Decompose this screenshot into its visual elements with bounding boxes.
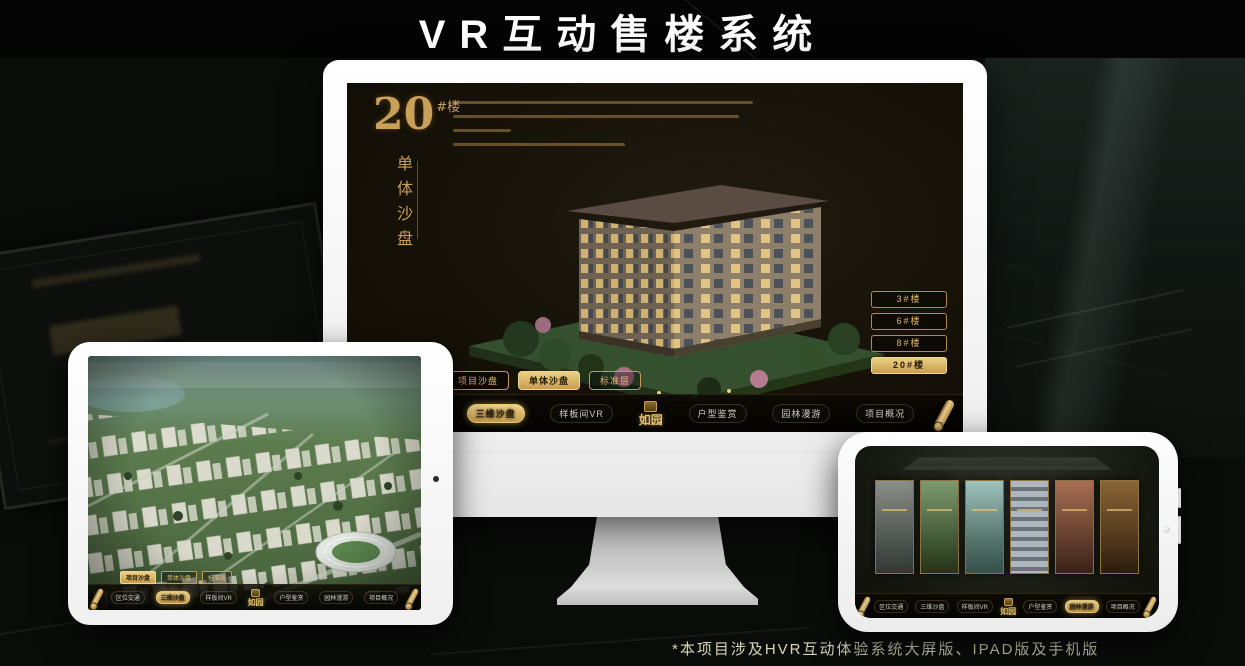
- brand-logo-text: 如园: [248, 598, 264, 606]
- brand-emblem-icon: [251, 589, 260, 597]
- sandbox-tab-group: 项目沙盘 单体沙盘 标准层: [447, 371, 641, 390]
- floor-button-6[interactable]: 6#楼: [871, 313, 947, 330]
- panorama-panel[interactable]: [1010, 480, 1049, 574]
- background-aerial-photo: [985, 58, 1245, 458]
- tablet-camera-icon: [433, 476, 439, 482]
- tablet-tab-standard-floor[interactable]: 标准层: [202, 571, 232, 584]
- menu-item-garden-roam[interactable]: 园林漫游: [1065, 600, 1099, 613]
- floor-button-group: 3#楼 6#楼 8#楼 20#楼: [871, 291, 947, 374]
- menu-item-overview[interactable]: 项目概况: [1106, 600, 1140, 613]
- panorama-panel[interactable]: [920, 480, 959, 574]
- menu-item-model-room-vr[interactable]: 样板间VR: [957, 600, 993, 613]
- tab-standard-floor[interactable]: 标准层: [589, 371, 641, 390]
- brand-emblem-icon: [1004, 598, 1013, 606]
- menu-item-floorplans[interactable]: 户型鉴赏: [689, 404, 747, 423]
- menu-item-garden-roam[interactable]: 园林漫游: [772, 404, 830, 423]
- tablet-nav-items: 区位交通 三维沙盘 样板间VR 如园 户型鉴赏 园林漫游 项目概况: [100, 589, 409, 606]
- panorama-panel[interactable]: [875, 480, 914, 574]
- tablet-tab-project-sandbox[interactable]: 项目沙盘: [120, 571, 156, 584]
- phone-volume-button: [1178, 488, 1181, 508]
- floor-button-3[interactable]: 3#楼: [871, 291, 947, 308]
- paragraph-line: [453, 115, 739, 118]
- brand-logo: 如园: [248, 589, 264, 606]
- menu-item-floorplans[interactable]: 户型鉴赏: [1023, 600, 1057, 613]
- phone-frame: 区位交通 三维沙盘 样板间VR 如园 户型鉴赏 园林漫游 项目概况: [838, 432, 1178, 632]
- paragraph-line: [453, 129, 511, 132]
- tab-project-sandbox[interactable]: 项目沙盘: [447, 371, 509, 390]
- menu-item-model-room-vr[interactable]: 样板间VR: [200, 591, 236, 604]
- menu-item-location[interactable]: 区位交通: [111, 591, 145, 604]
- panorama-panel[interactable]: [1055, 480, 1094, 574]
- menu-item-3d-sandbox[interactable]: 三维沙盘: [915, 600, 949, 613]
- phone-camera-icon: [1163, 526, 1170, 533]
- menu-item-3d-sandbox[interactable]: 三维沙盘: [156, 591, 190, 604]
- building-model-image[interactable]: [459, 141, 889, 401]
- page-title: VR互动售楼系统: [0, 2, 1245, 60]
- tablet-tab-group: 项目沙盘 单体沙盘 标准层: [120, 571, 232, 584]
- monitor-stand: [557, 515, 758, 605]
- paragraph-line: [453, 101, 753, 104]
- screen-heading: 20#楼: [373, 93, 460, 137]
- phone-screen: 区位交通 三维沙盘 样板间VR 如园 户型鉴赏 园林漫游 项目概况: [855, 446, 1159, 618]
- brand-logo-text: 如园: [1000, 607, 1016, 615]
- menu-item-3d-sandbox[interactable]: 三维沙盘: [467, 404, 525, 423]
- pavilion-silhouette: [902, 452, 1112, 470]
- stage: VR互动售楼系统 20#楼 单体沙盘: [0, 0, 1245, 666]
- phone-nav-items: 区位交通 三维沙盘 样板间VR 如园 户型鉴赏 园林漫游 项目概况: [867, 598, 1147, 615]
- menu-item-floorplans[interactable]: 户型鉴赏: [274, 591, 308, 604]
- menu-item-overview[interactable]: 项目概况: [856, 404, 914, 423]
- brand-emblem-icon: [644, 401, 657, 412]
- panorama-gallery: [875, 480, 1139, 574]
- phone-nav-bar: 区位交通 三维沙盘 样板间VR 如园 户型鉴赏 园林漫游 项目概况: [855, 593, 1159, 618]
- tablet-screen: 项目沙盘 单体沙盘 标准层 区位交通 三维沙盘 样板间VR 如园 户型鉴赏 园林…: [88, 356, 421, 610]
- menu-item-garden-roam[interactable]: 园林漫游: [319, 591, 353, 604]
- tablet-tab-single-sandbox[interactable]: 单体沙盘: [161, 571, 197, 584]
- panorama-panel[interactable]: [965, 480, 1004, 574]
- menu-item-model-room-vr[interactable]: 样板间VR: [550, 404, 613, 423]
- phone-volume-button: [1178, 516, 1181, 544]
- floor-button-20[interactable]: 20#楼: [871, 357, 947, 374]
- footnote-text: *本项目涉及HVR互动体验系统大屏版、IPAD版及手机版: [672, 638, 1099, 659]
- menu-item-overview[interactable]: 项目概况: [364, 591, 398, 604]
- panorama-panel[interactable]: [1100, 480, 1139, 574]
- menu-item-location[interactable]: 区位交通: [874, 600, 908, 613]
- brand-logo: 如园: [639, 401, 663, 426]
- floor-button-8[interactable]: 8#楼: [871, 335, 947, 352]
- heading-subtitle-rule: [417, 161, 418, 239]
- tablet-nav-bar: 区位交通 三维沙盘 样板间VR 如园 户型鉴赏 园林漫游 项目概况: [88, 584, 421, 610]
- brand-logo-text: 如园: [639, 414, 663, 426]
- tab-single-sandbox[interactable]: 单体沙盘: [518, 371, 580, 390]
- brand-logo: 如园: [1000, 598, 1016, 615]
- heading-number: 20: [373, 89, 434, 140]
- tablet-frame: 项目沙盘 单体沙盘 标准层 区位交通 三维沙盘 样板间VR 如园 户型鉴赏 园林…: [68, 342, 453, 625]
- heading-subtitle: 单体沙盘: [391, 155, 415, 255]
